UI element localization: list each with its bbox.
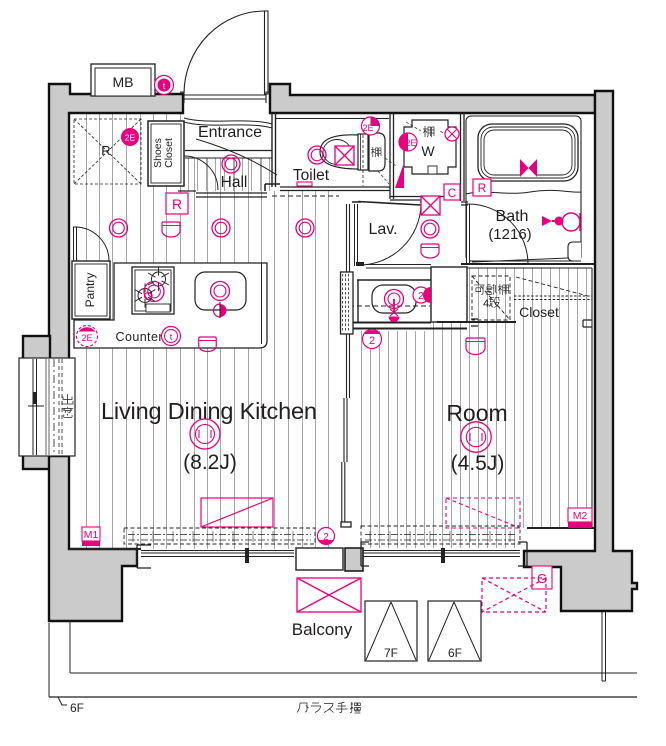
- svg-text:Entrance: Entrance: [198, 124, 262, 141]
- svg-text:C: C: [448, 186, 457, 200]
- svg-text:2: 2: [369, 335, 375, 347]
- svg-text:R: R: [101, 143, 110, 158]
- svg-text:Counter: Counter: [116, 330, 163, 344]
- svg-text:2E: 2E: [362, 123, 373, 133]
- svg-text:Lav.: Lav.: [368, 221, 397, 238]
- svg-text:2E: 2E: [81, 333, 92, 343]
- svg-text:MB: MB: [113, 74, 134, 90]
- svg-text:Bath: Bath: [496, 208, 529, 225]
- svg-text:Closet: Closet: [519, 304, 559, 320]
- svg-text:2: 2: [323, 532, 329, 543]
- svg-text:M1: M1: [84, 529, 99, 541]
- svg-text:(4.5J): (4.5J): [451, 452, 505, 475]
- svg-text:Closet: Closet: [163, 138, 175, 168]
- svg-text:2E: 2E: [125, 133, 136, 143]
- svg-text:7F: 7F: [384, 646, 398, 660]
- svg-text:R: R: [478, 181, 487, 195]
- svg-text:M2: M2: [573, 510, 588, 522]
- svg-text:6F: 6F: [70, 701, 84, 715]
- svg-text:2E: 2E: [405, 138, 416, 148]
- svg-text:(8.2J): (8.2J): [183, 451, 237, 474]
- svg-text:Pantry: Pantry: [83, 273, 97, 308]
- svg-text:4: 4: [483, 298, 489, 310]
- svg-text:Toilet: Toilet: [293, 167, 330, 184]
- svg-text:Hall: Hall: [221, 174, 248, 191]
- svg-text:W: W: [421, 143, 435, 159]
- svg-text:6F: 6F: [448, 646, 462, 660]
- svg-text:R: R: [172, 196, 182, 212]
- svg-text:(1216): (1216): [488, 226, 531, 243]
- svg-text:Balcony: Balcony: [292, 620, 353, 639]
